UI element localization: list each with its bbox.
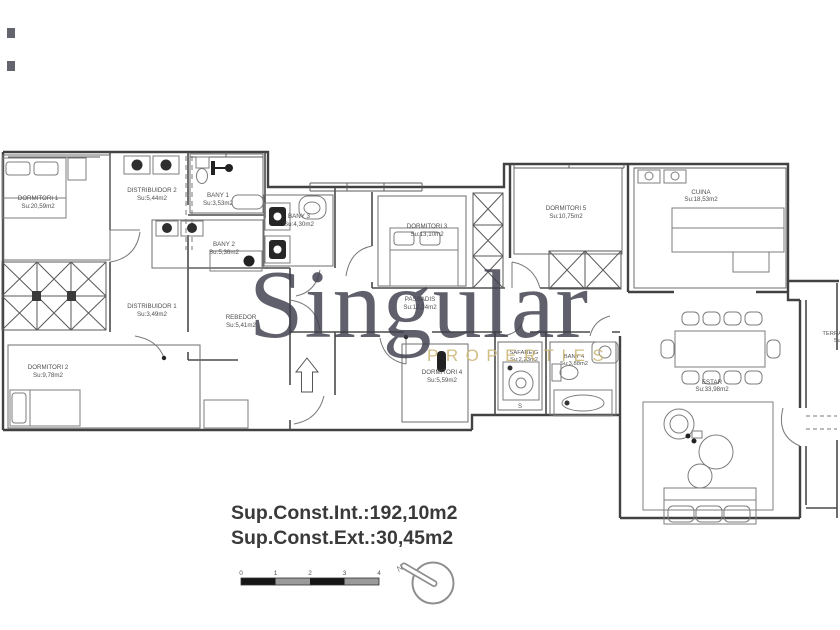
room-outline-dormitori-1	[3, 155, 110, 260]
washer-drum	[509, 371, 533, 395]
chair-1	[682, 312, 699, 325]
nightstand	[68, 158, 86, 180]
terrace-door-dashes	[806, 416, 837, 429]
label-dormitori-1-name: DORMITORI 1	[18, 195, 59, 202]
chair-10	[767, 340, 780, 358]
watermark: Singular PROPERTIES	[249, 251, 611, 365]
round-table-large	[699, 435, 733, 469]
watermark-subtitle: PROPERTIES	[427, 346, 611, 365]
scale-tick-4: 4	[377, 570, 381, 577]
pillow-2	[34, 162, 58, 175]
pillow-1	[6, 162, 30, 175]
const-ext-text: Sup.Const.Ext.:30,45m2	[231, 527, 453, 549]
label-bany-2-area: Su:5,36m2	[209, 249, 239, 256]
label-dormitori-2-area: Su:9,78m2	[33, 372, 63, 379]
scale-tick-3: 3	[343, 570, 347, 577]
label-dormitori-5-area: Su:10,75m2	[549, 213, 583, 220]
armchair-dot-2	[692, 439, 697, 444]
watermark-brand: Singular	[249, 251, 589, 359]
pillow-3	[12, 393, 26, 423]
tub-faucet	[565, 401, 570, 406]
tub-bany-4	[554, 390, 612, 416]
closet-post-2	[67, 291, 76, 301]
label-dormitori-3-name: DORMITORI 3	[407, 223, 448, 230]
bench	[204, 400, 248, 428]
scale-tick-2: 2	[308, 570, 312, 577]
chair-8	[745, 371, 762, 384]
chair-7	[724, 371, 741, 384]
compass: N	[395, 563, 454, 604]
wc-3-bowl	[560, 366, 578, 380]
kitchen-cabinet	[733, 252, 769, 272]
scale-tick-1: 1	[274, 570, 278, 577]
chair-3	[724, 312, 741, 325]
label-dormitori-2-name: DORMITORI 2	[28, 364, 69, 371]
label-dormitori-4-area: Su:5,59m2	[427, 377, 457, 384]
door-hinge-dot-1	[162, 356, 166, 360]
closet-post-1	[32, 291, 41, 301]
label-dormitori-3-area: Su:13,10m2	[410, 231, 444, 238]
label-bany-1-name: BANY 1	[207, 192, 229, 199]
sofa-cushion-3	[724, 506, 750, 522]
entry-arrow	[296, 358, 318, 392]
kitchen-sink-2	[671, 172, 679, 180]
label-distribuidor-2-name: DISTRIBUIDOR 2	[127, 187, 177, 194]
bed-dormitori-2	[10, 390, 80, 426]
const-int-text: Sup.Const.Int.:192,10m2	[231, 502, 458, 524]
label-bany-1-area: Su:3,53m2	[203, 200, 233, 207]
sofa-cushion-2	[696, 506, 722, 522]
label-estar-name: ESTAR	[702, 379, 723, 386]
rug	[643, 402, 773, 510]
washer-knob	[508, 366, 513, 371]
label-cuina-area: Su:18,53m2	[684, 196, 718, 203]
armchair-inner	[670, 415, 688, 433]
label-cuina-name: CUINA	[691, 189, 711, 196]
window-lines	[8, 152, 786, 191]
windows	[8, 152, 786, 191]
area-summary: Sup.Const.Int.:192,10m2 Sup.Const.Ext.:3…	[231, 502, 458, 549]
scan-mark-1	[7, 28, 15, 38]
scale-seg-4	[345, 578, 380, 585]
label-distribuidor-2-area: Su:5,44m2	[137, 195, 167, 202]
fixture-bar	[211, 161, 215, 175]
label-dormitori-1-area: Su:20,59m2	[21, 203, 55, 210]
fixture-box-1-dot	[274, 213, 282, 221]
floor-plan-page: DORMITORI 1 Su:20,59m2 DISTRIBUIDOR 2 Su…	[0, 0, 840, 630]
label-dormitori-4-name: DORMITORI 4	[422, 369, 463, 376]
label-bany-2-name: BANY 2	[213, 241, 235, 248]
sink-4	[187, 223, 197, 233]
fixture-ball	[225, 164, 233, 172]
chair-5	[682, 371, 699, 384]
label-estar-area: Su:33,98m2	[695, 386, 729, 393]
wc-1-bowl	[197, 169, 208, 184]
sofa-cushion-1	[668, 506, 694, 522]
sink-3	[162, 223, 172, 233]
scale-seg-2	[276, 578, 311, 585]
kitchen-sink-1	[645, 172, 653, 180]
tub-bany-1	[232, 195, 263, 209]
label-terrassa-name: TERRASSA	[822, 331, 840, 337]
label-bany-3-name: BANY 3	[288, 213, 310, 220]
washer-drum-inner	[516, 378, 526, 388]
chair-2	[703, 312, 720, 325]
closet-left-grid	[2, 262, 106, 330]
label-bany-3-area: Su:4,30m2	[284, 221, 314, 228]
scan-marks	[7, 28, 15, 71]
floor-plan-drawing: DORMITORI 1 Su:20,59m2 DISTRIBUIDOR 2 Su…	[0, 0, 840, 630]
scan-mark-2	[7, 61, 15, 71]
label-distribuidor-1-name: DISTRIBUIDOR 1	[127, 303, 177, 310]
side-object	[692, 431, 702, 438]
room-outline-dormitori-2	[8, 345, 200, 428]
armchair-dot-1	[686, 434, 691, 439]
label-distribuidor-1-area: Su:3,49m2	[137, 311, 167, 318]
dining-table	[675, 331, 765, 367]
sink-1	[132, 160, 143, 171]
chair-4	[745, 312, 762, 325]
label-dormitori-5-name: DORMITORI 5	[546, 205, 587, 212]
chair-9	[661, 340, 674, 358]
scale-seg-1	[241, 578, 276, 585]
scale-bar: 0 1 2 3 4	[239, 570, 381, 585]
label-step: S	[518, 404, 522, 410]
scale-tick-0: 0	[239, 570, 243, 577]
wc-1-tank	[196, 157, 209, 168]
sink-2	[161, 160, 172, 171]
label-terrassa-area: Su:	[834, 338, 840, 344]
scale-seg-3	[310, 578, 345, 585]
kitchen-island	[672, 208, 784, 252]
round-table-small	[688, 464, 712, 488]
